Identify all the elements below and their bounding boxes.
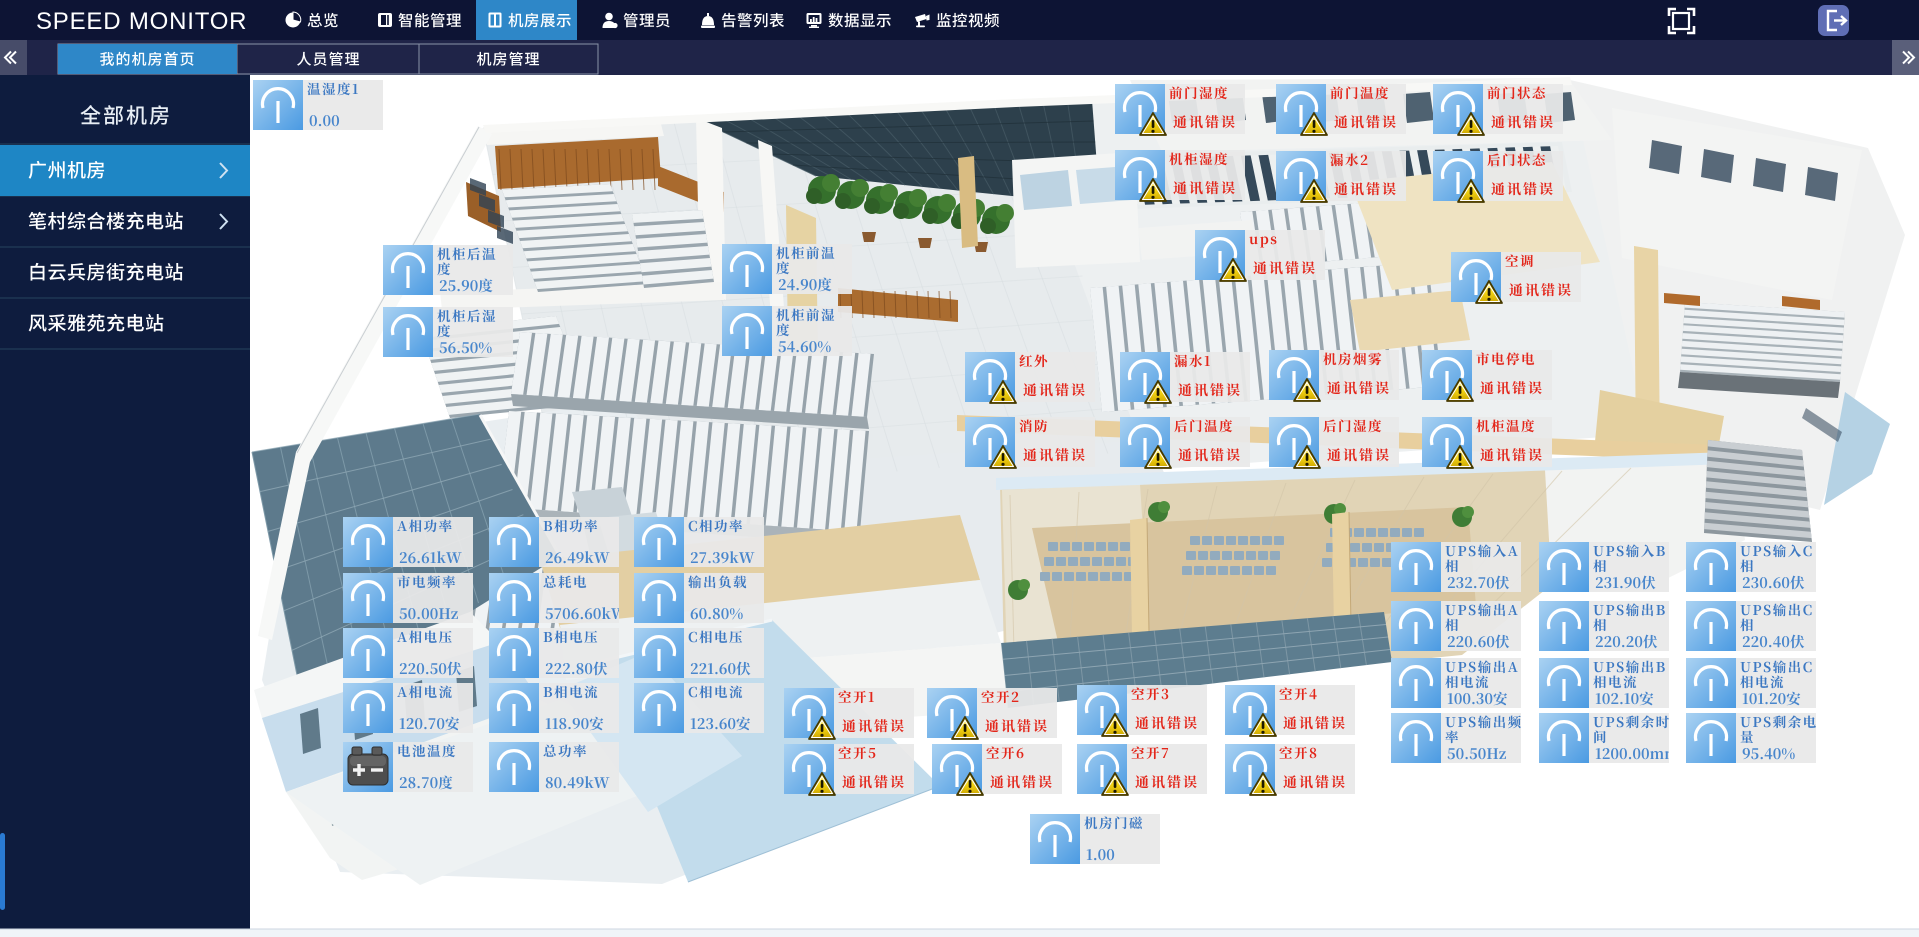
svg-text:SPEED MONITOR: SPEED MONITOR xyxy=(36,8,247,35)
